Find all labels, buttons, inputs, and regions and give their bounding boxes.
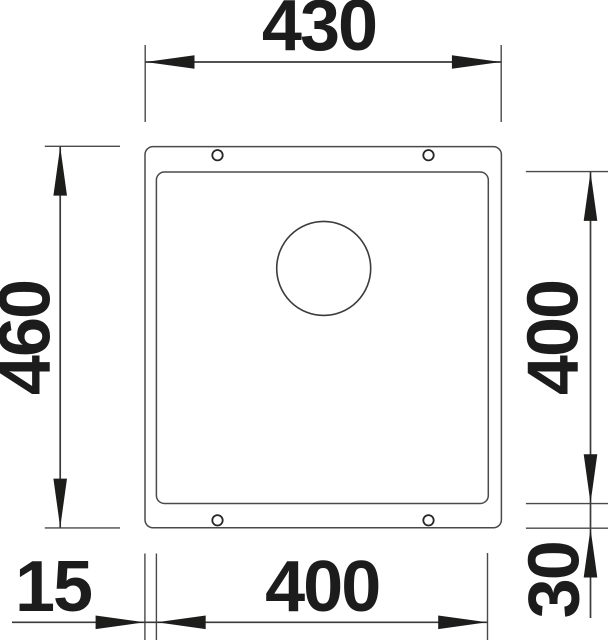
svg-text:400: 400 [265, 547, 379, 627]
svg-text:400: 400 [514, 281, 594, 395]
svg-text:15: 15 [15, 547, 92, 627]
svg-text:30: 30 [515, 542, 595, 618]
svg-text:460: 460 [0, 281, 66, 395]
svg-text:430: 430 [262, 0, 376, 66]
